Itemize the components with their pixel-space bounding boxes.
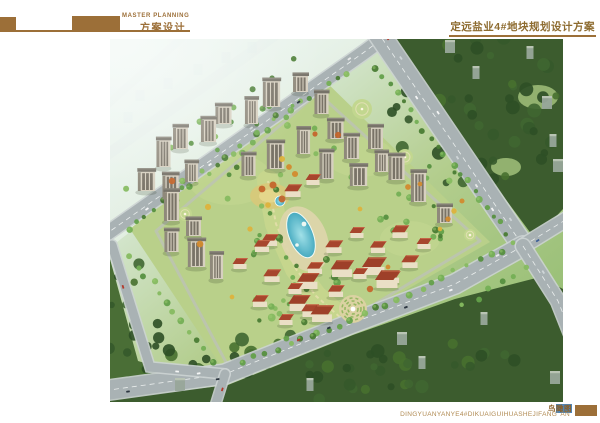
- pinyin-title: DINGYUANYANYE4#DIKUAIGUIHUASHEJIFANG' AN: [400, 411, 570, 418]
- footer-accent-block: [575, 405, 597, 416]
- aerial-view-svg: [110, 39, 563, 402]
- header-accent-block-left: [0, 17, 16, 30]
- aerial-render-image: [110, 39, 563, 402]
- header-rule: [0, 30, 190, 32]
- project-title: 定远盐业4#地块规划设计方案: [449, 19, 596, 38]
- presentation-page: MASTER PLANNING 方案设计 定远盐业4#地块规划设计方案 鸟瞰图 …: [0, 0, 600, 423]
